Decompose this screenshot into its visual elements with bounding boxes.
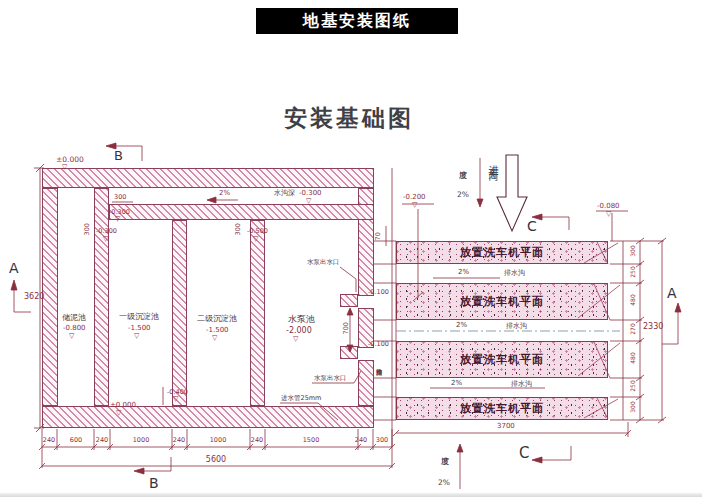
level-mark-icon: ▽ xyxy=(134,333,139,340)
level-mark-icon: ▽ xyxy=(253,236,258,243)
chamber-3-level: -1.500 xyxy=(206,327,229,334)
level-neg-300-b: -0.300 xyxy=(96,228,117,235)
level-mark-icon: ▽ xyxy=(293,336,298,343)
tank-top-wall xyxy=(42,168,374,188)
dim-70: 70 xyxy=(375,228,382,244)
channel-level: -0.300 xyxy=(299,190,322,197)
section-marker-c-bottom: C xyxy=(519,446,529,461)
washer-band-1: 放置洗车机平面 xyxy=(396,241,608,264)
drawing-sheet: 地基安装图纸 安装基础图 放置洗车机平面 放置洗车机平面 放置洗车机平面 放置洗… xyxy=(0,0,702,497)
chamber-1-level: -0.800 xyxy=(63,325,86,332)
title-banner: 地基安装图纸 xyxy=(256,8,458,34)
level-zero-bottom: ±0.000 xyxy=(110,402,136,409)
dim-right-6: 250 xyxy=(630,375,636,397)
drawing-title: 安装基础图 xyxy=(284,103,414,134)
title-banner-text: 地基安装图纸 xyxy=(303,11,411,32)
level-mark-icon: ▽ xyxy=(62,164,67,171)
dim-right-total: 2330 xyxy=(643,323,663,331)
level-neg-500: -0.500 xyxy=(247,228,268,235)
drain-slope-3: 2% xyxy=(451,380,462,387)
slope-word-bottom: 坡度 xyxy=(440,450,448,474)
level-mark-icon: ▽ xyxy=(212,335,217,342)
dim-right-3: 480 xyxy=(630,289,636,311)
level-mark-icon: ▽ xyxy=(606,211,611,218)
dim-right-4: 270 xyxy=(630,318,636,340)
pump-outlet-top-label: 水泵出水口 xyxy=(307,259,340,266)
slope-value-bottom: 2% xyxy=(438,479,450,487)
drain-label-1: 排水沟 xyxy=(504,270,525,277)
dim-300-horizontal: 300 xyxy=(114,194,126,201)
dim-right-1: 300 xyxy=(630,240,636,262)
washer-band-label: 放置洗车机平面 xyxy=(460,352,544,367)
chamber-4-level: -2.000 xyxy=(286,327,312,335)
section-marker-b-bottom: B xyxy=(149,476,159,490)
dim-bottom-8: 1500 xyxy=(298,437,324,444)
chamber-4-name: 水泵池 xyxy=(288,315,315,324)
level-mark-icon: ▽ xyxy=(173,396,178,403)
level-neg-080: -0.080 xyxy=(597,203,620,210)
level-mark-icon: ▽ xyxy=(115,216,120,223)
level-mark-icon: ▽ xyxy=(412,202,417,209)
drain-slope-1: 2% xyxy=(458,269,469,276)
channel-name: 水沟深 xyxy=(274,190,295,197)
level-neg-100-upper: -0.100 xyxy=(368,289,389,296)
washer-band-label: 放置洗车机平面 xyxy=(460,245,544,260)
dim-left-total: 3620 xyxy=(24,293,44,301)
washer-band-label: 放置洗车机平面 xyxy=(460,401,544,416)
level-mark-icon: ▽ xyxy=(69,333,74,340)
slope-word-top: 坡度 xyxy=(458,164,466,188)
level-zero-top: ±0.000 xyxy=(56,156,84,164)
level-neg-200: -0.200 xyxy=(403,194,426,201)
tank-left-wall xyxy=(42,188,58,406)
drain-label-2: 排水沟 xyxy=(506,323,527,330)
dim-300-vert-1: 300 xyxy=(84,221,91,237)
dim-bottom-4: 1000 xyxy=(128,437,154,444)
chamber-3-name: 二级沉淀池 xyxy=(197,315,237,323)
drain-label-3: 排水沟 xyxy=(511,381,532,388)
dim-bottom-3: 240 xyxy=(89,437,115,444)
level-mark-icon: ▽ xyxy=(116,410,121,417)
dim-bottom-1: 240 xyxy=(36,437,62,444)
section-marker-a-left: A xyxy=(9,261,19,275)
channel-slope: 2% xyxy=(219,190,230,197)
auto-mud-drain-label: 自动排泥沟 xyxy=(376,364,382,404)
dim-300-vert-2: 300 xyxy=(235,221,242,237)
washer-band-2: 放置洗车机平面 xyxy=(396,283,608,320)
pump-outlet-stub-lower xyxy=(340,346,358,359)
level-neg-100-lower: -0.100 xyxy=(368,341,389,348)
level-mark-icon: ▽ xyxy=(306,198,311,205)
washer-band-3: 放置洗车机平面 xyxy=(396,341,608,378)
chamber-2-level: -1.500 xyxy=(128,325,151,332)
tank-bottom-slab xyxy=(42,406,374,428)
dim-right-2: 250 xyxy=(630,261,636,283)
dim-bottom-9: 240 xyxy=(350,437,372,444)
tank-inner-wall-3 xyxy=(250,220,265,406)
washer-band-label: 放置洗车机平面 xyxy=(460,294,544,309)
dim-platform-bottom-total: 3700 xyxy=(497,423,515,430)
dim-bottom-total: 5600 xyxy=(196,456,236,464)
entry-direction-label: 进车方向 xyxy=(488,157,498,213)
tank-inner-wall-1 xyxy=(94,188,109,406)
dim-bottom-10: 300 xyxy=(371,437,393,444)
chamber-2-name: 一级沉淀池 xyxy=(119,313,159,321)
slope-value-top: 2% xyxy=(457,191,469,199)
pump-outlet-bottom-label: 水泵出水口 xyxy=(314,375,347,382)
washer-band-4: 放置洗车机平面 xyxy=(396,397,608,420)
tank-inner-wall-2 xyxy=(172,220,187,406)
tank-right-wall-lower xyxy=(358,360,374,406)
dim-right-7: 300 xyxy=(630,396,636,418)
dim-right-5: 480 xyxy=(630,347,636,369)
drain-slope-2: 2% xyxy=(456,322,467,329)
image-bottom-edge xyxy=(0,493,702,497)
dim-bottom-5: 240 xyxy=(166,437,192,444)
chamber-1-name: 储泥池 xyxy=(62,314,86,322)
dim-bottom-7: 240 xyxy=(244,437,270,444)
dim-bottom-2: 600 xyxy=(63,437,89,444)
level-mark-icon: ▽ xyxy=(103,236,108,243)
channel-inner-wall xyxy=(109,204,374,220)
section-marker-b-top: B xyxy=(114,149,123,162)
section-marker-c-top: C xyxy=(527,219,537,233)
inlet-pipe-label: 进水管25mm xyxy=(281,395,321,402)
section-marker-a-right: A xyxy=(667,286,677,300)
dim-bottom-6: 1000 xyxy=(205,437,231,444)
pump-outlet-stub-upper xyxy=(340,294,358,307)
dim-700: 700 xyxy=(343,318,350,338)
